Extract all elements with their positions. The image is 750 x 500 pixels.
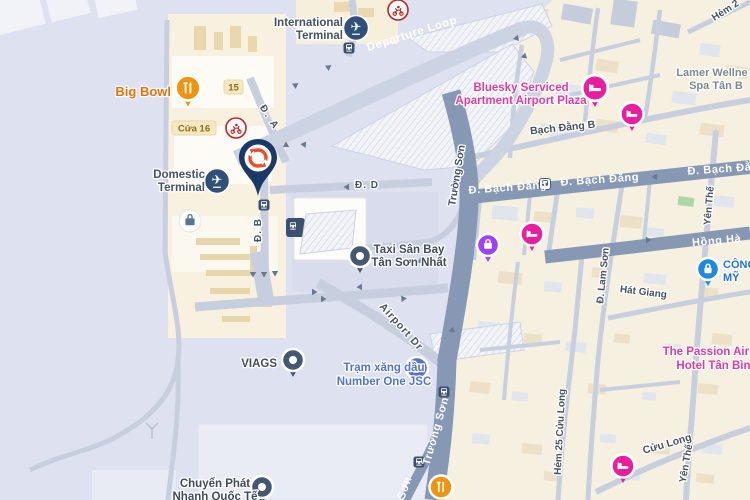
- gate-badge-15-label: 15: [228, 83, 239, 94]
- poi-label-chuyen-phat[interactable]: Nhanh Quốc Tế: [173, 491, 259, 500]
- street-label-d-d: Đ. D: [355, 180, 379, 191]
- gate-badge-cua-16[interactable]: Cửa 16: [172, 121, 216, 135]
- poi-label-international-terminal[interactable]: Terminal: [296, 30, 343, 42]
- poi-label-big-bowl[interactable]: Big Bowl: [115, 84, 171, 99]
- poi-label-lamer[interactable]: Spa Tân B: [689, 80, 743, 92]
- motorbike-icon[interactable]: [388, 0, 408, 20]
- restaurant-pin[interactable]: [430, 476, 453, 500]
- street-label-d-b: Đ. B: [253, 218, 264, 242]
- gate-badge-15[interactable]: 15: [224, 80, 243, 94]
- poi-label-cong-my[interactable]: CÔNG: [723, 258, 750, 271]
- poi-label-bluesky[interactable]: Bluesky Serviced: [473, 82, 568, 94]
- poi-label-viags[interactable]: VIAGS: [241, 358, 277, 370]
- poi-label-tram-xang-dau[interactable]: Number One JSC: [337, 376, 432, 388]
- baggage-icon[interactable]: [179, 210, 201, 232]
- map-svg: ✈: [0, 0, 750, 500]
- map-canvas[interactable]: ✈: [0, 0, 750, 500]
- airplane-terminal-icon[interactable]: [205, 169, 230, 194]
- poi-label-passion[interactable]: The Passion Airport: [663, 346, 750, 358]
- airplane-terminal-icon[interactable]: [344, 16, 369, 41]
- poi-label-taxi[interactable]: Tân Sơn Nhất: [371, 257, 446, 269]
- poi-label-bluesky[interactable]: Apartment Airport Plaza: [455, 95, 587, 107]
- poi-label-international-terminal[interactable]: International: [274, 17, 343, 29]
- poi-label-domestic-terminal[interactable]: Domestic: [153, 169, 205, 181]
- bus-stop-icon[interactable]: [344, 43, 355, 54]
- motorbike-icon[interactable]: [226, 118, 246, 138]
- poi-label-domestic-terminal[interactable]: Terminal: [158, 182, 205, 194]
- poi-label-lamer[interactable]: Lamer Wellne: [676, 67, 747, 79]
- poi-label-tram-xang-dau[interactable]: Trạm xăng dầu: [343, 362, 424, 374]
- poi-label-chuyen-phat[interactable]: Chuyển Phát: [180, 478, 250, 490]
- poi-label-passion[interactable]: Hotel Tân Bình: [676, 360, 750, 372]
- bus-stop-icon[interactable]: [259, 200, 270, 211]
- gate-badge-cua-16-label: Cửa 16: [178, 124, 210, 135]
- poi-label-taxi[interactable]: Taxi Sân Bay: [374, 244, 445, 256]
- bus-stop-icon[interactable]: [288, 221, 299, 232]
- poi-label-cong-my[interactable]: MỸ: [723, 271, 740, 284]
